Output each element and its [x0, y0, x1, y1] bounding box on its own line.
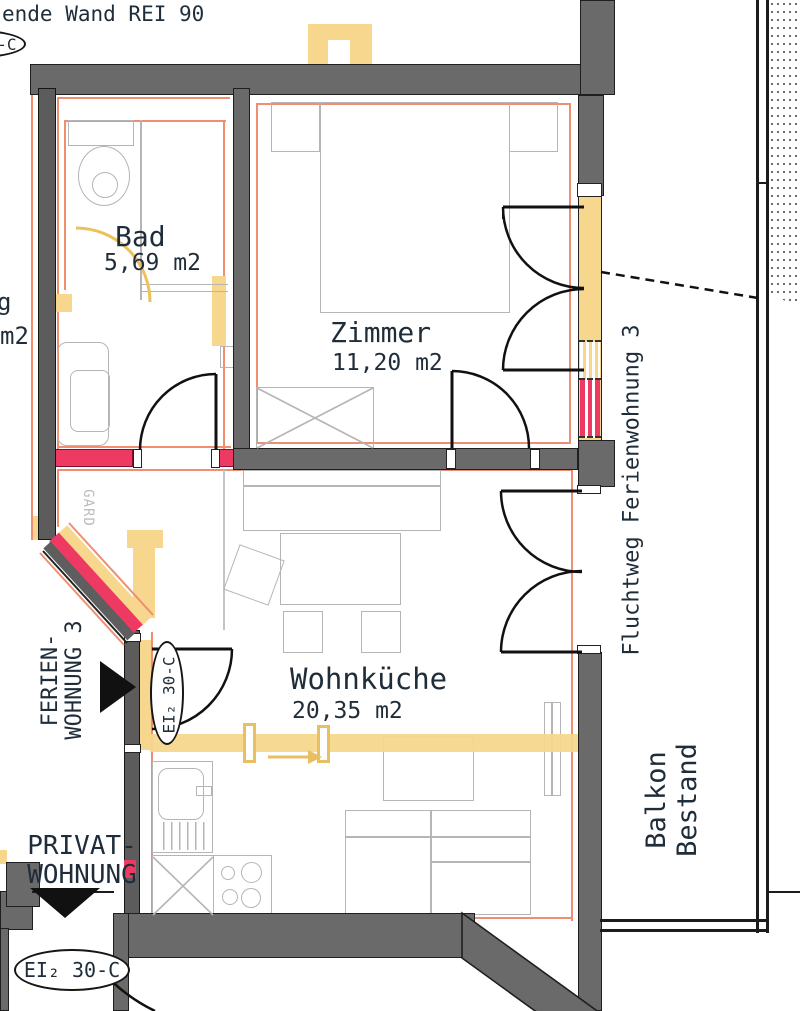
partial-room-label: m2 [0, 322, 29, 350]
ferienwohnung-arrow [100, 661, 136, 713]
privatwohnung-label-line2: WOHNUNG [18, 861, 146, 890]
balcony-label-line2: Bestand [672, 743, 703, 857]
room-name-wohnkueche: Wohnküche [290, 662, 447, 696]
balcony-label-line1: Balkon [641, 743, 672, 857]
privatwohnung-arrow [30, 888, 100, 918]
gard-label: GARD [80, 489, 96, 527]
room-area-bad: 5,69 m2 [104, 250, 201, 276]
fire-rating-label: EI₂ 30-C [160, 656, 179, 733]
top-wall-note: ende Wand REI 90 [2, 2, 204, 26]
fire-rating-ellipse-entrance: EI₂ 30-C [150, 641, 184, 745]
ferienwohnung-label-line1: FERIEN- [39, 620, 63, 739]
wall-bottom-diagonal [462, 913, 600, 1011]
room-name-bad: Bad [115, 220, 166, 253]
fire-rating-label: EI₂ 30-C [24, 958, 120, 982]
balcony-label: Balkon Bestand [641, 743, 703, 857]
door-arc-balcony [503, 289, 584, 370]
door-arc-bad [140, 374, 216, 450]
privatwohnung-label: PRIVAT- WOHNUNG [18, 832, 146, 889]
door-arc-zimmer [452, 371, 529, 448]
room-area-wohnkueche: 20,35 m2 [292, 698, 403, 724]
escape-arrow-head [308, 750, 322, 764]
ferienwohnung-label: FERIEN- WOHNUNG 3 [39, 620, 87, 739]
fire-rating-label: EI₂ 30-C [0, 35, 17, 54]
room-area-zimmer: 11,20 m2 [332, 350, 443, 376]
door-arc-balcony [501, 491, 582, 572]
balcony-dashed-line [601, 272, 758, 298]
partial-room-label: g [0, 288, 11, 316]
room-name-zimmer: Zimmer [330, 316, 431, 349]
escape-route-label: Fluchtweg Ferienwohnung 3 [620, 324, 645, 655]
door-arc-balcony [501, 571, 582, 652]
ferienwohnung-label-line2: WOHNUNG 3 [63, 620, 87, 739]
floor-plan: EI₂ 30-C EI₂ 30-C EI₂ 30-C ende Wand REI… [0, 0, 800, 1011]
privatwohnung-label-line1: PRIVAT- [18, 832, 146, 861]
fire-rating-ellipse-privat: EI₂ 30-C [14, 949, 130, 991]
door-arc-balcony [503, 207, 584, 288]
